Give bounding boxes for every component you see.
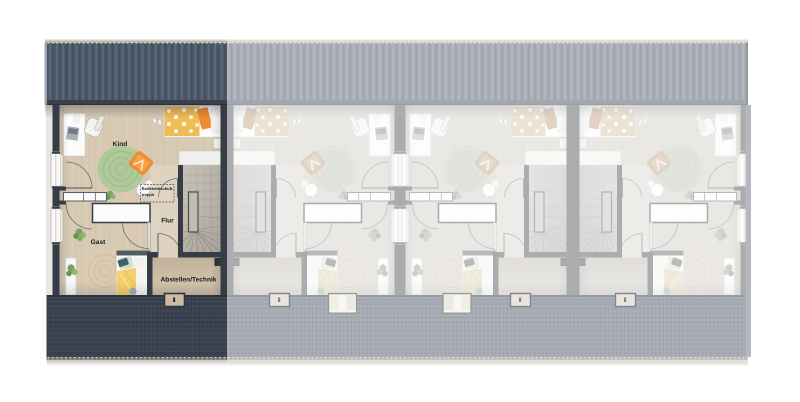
- svg-text:Bodeneinschub-: Bodeneinschub-: [142, 186, 175, 191]
- svg-text:Gast: Gast: [91, 239, 106, 246]
- svg-text:Kind: Kind: [113, 141, 128, 148]
- svg-text:Abstellen/Technik: Abstellen/Technik: [161, 277, 217, 284]
- svg-text:treppe: treppe: [142, 192, 155, 197]
- svg-text:Flur: Flur: [161, 218, 174, 225]
